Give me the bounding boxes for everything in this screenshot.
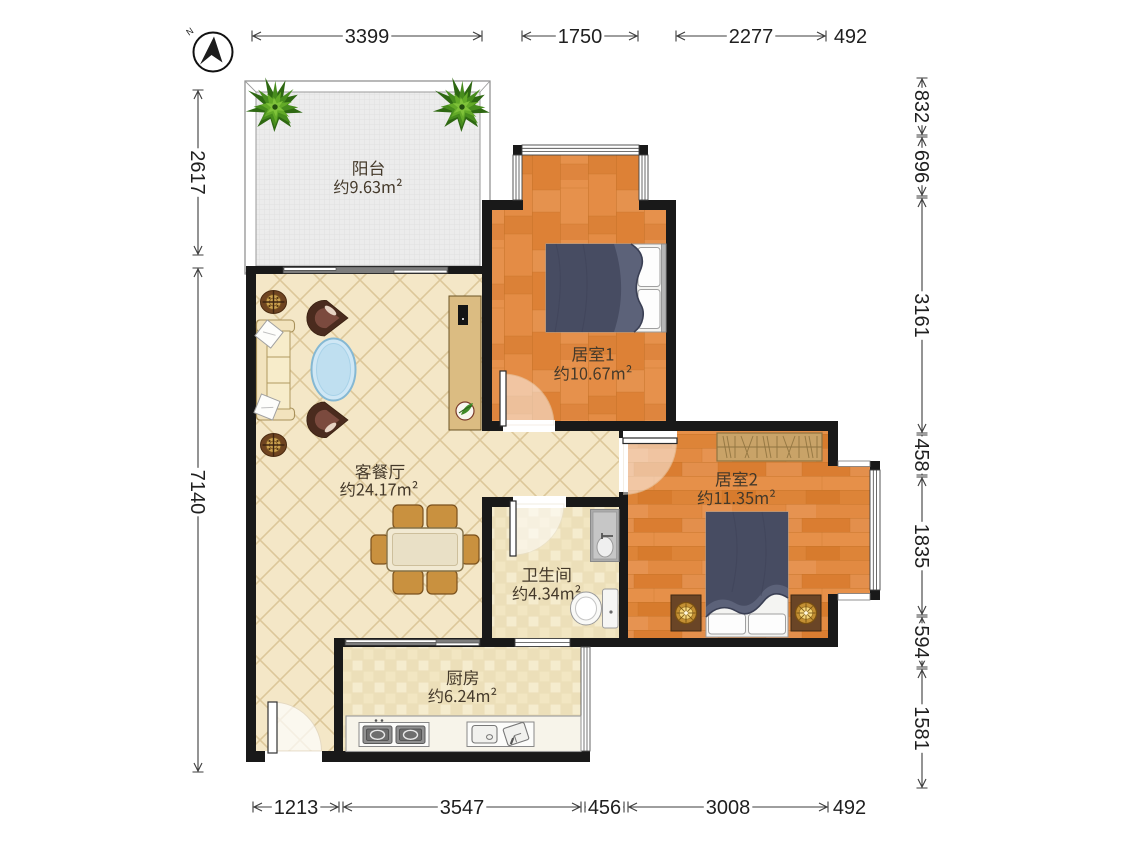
svg-text:1835: 1835: [910, 524, 932, 569]
svg-text:3547: 3547: [440, 797, 485, 819]
svg-text:458: 458: [910, 438, 932, 471]
svg-text:594: 594: [910, 625, 932, 658]
svg-text:492: 492: [834, 26, 867, 48]
svg-text:2617: 2617: [186, 150, 208, 195]
svg-text:7140: 7140: [186, 470, 208, 515]
svg-text:832: 832: [910, 90, 932, 123]
svg-text:456: 456: [588, 797, 621, 819]
svg-text:3161: 3161: [910, 293, 932, 338]
svg-text:1581: 1581: [910, 706, 932, 751]
svg-text:492: 492: [833, 797, 866, 819]
svg-text:1213: 1213: [274, 797, 319, 819]
svg-text:3399: 3399: [345, 26, 390, 48]
svg-text:2277: 2277: [729, 26, 774, 48]
svg-text:3008: 3008: [706, 797, 751, 819]
svg-text:1750: 1750: [558, 26, 603, 48]
svg-text:696: 696: [910, 150, 932, 183]
